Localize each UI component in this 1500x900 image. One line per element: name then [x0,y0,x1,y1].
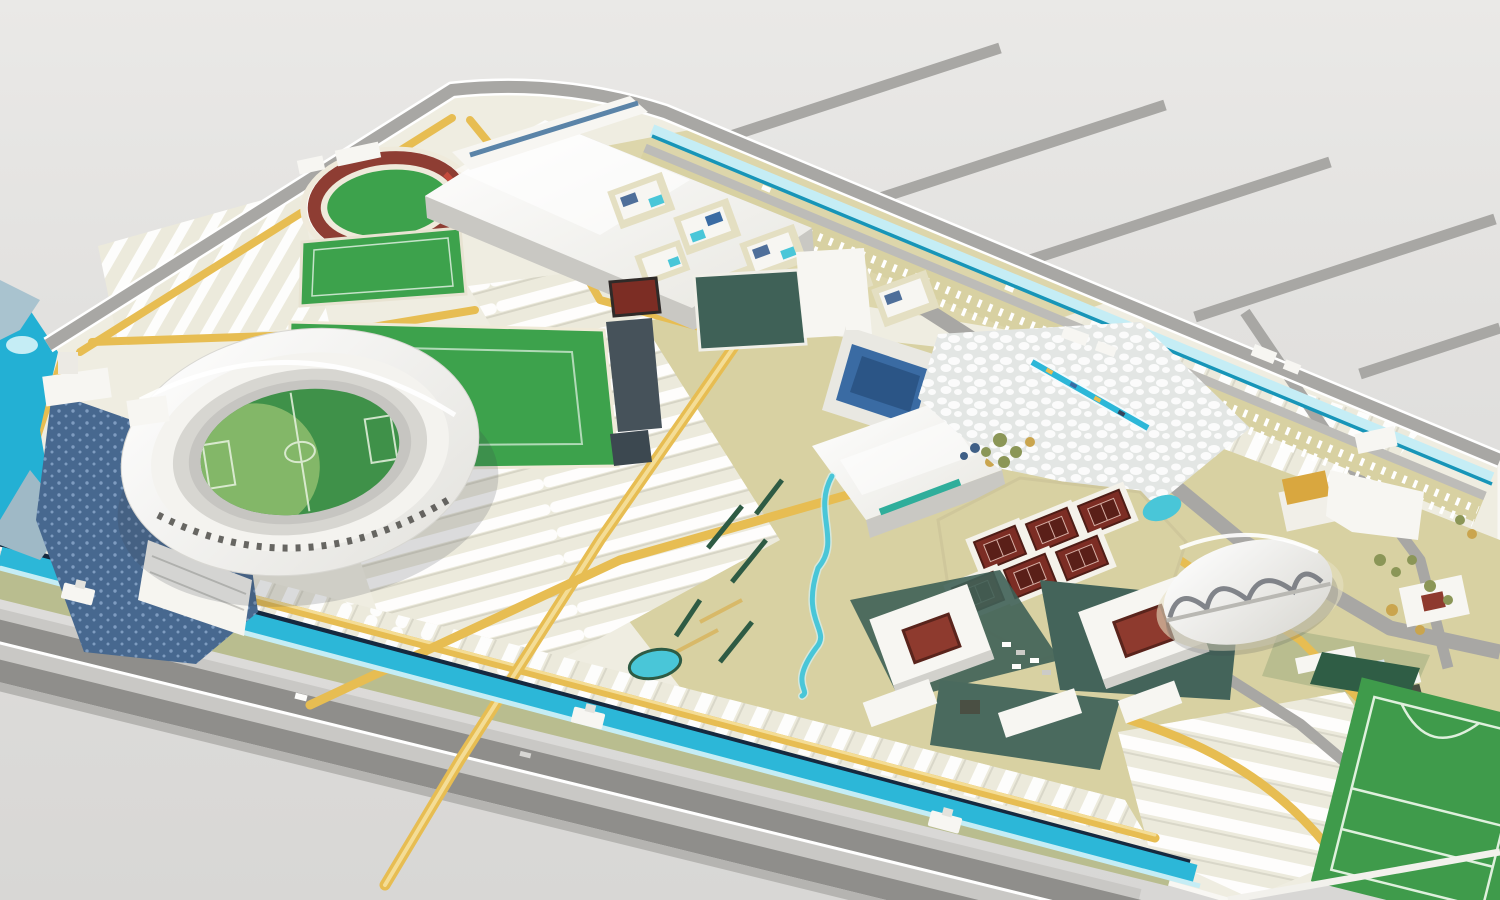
training-field-small [300,228,466,306]
site-plan-svg [0,0,1500,900]
west-building [126,395,169,426]
sports-city-render [0,0,1500,900]
aquatic-tower [846,318,862,330]
service-shed [960,700,980,714]
grandstand-small [610,430,652,466]
sunken-courtyard [694,270,806,350]
red-court [610,278,660,316]
west-tower [58,352,78,374]
water-highlight [6,336,38,354]
